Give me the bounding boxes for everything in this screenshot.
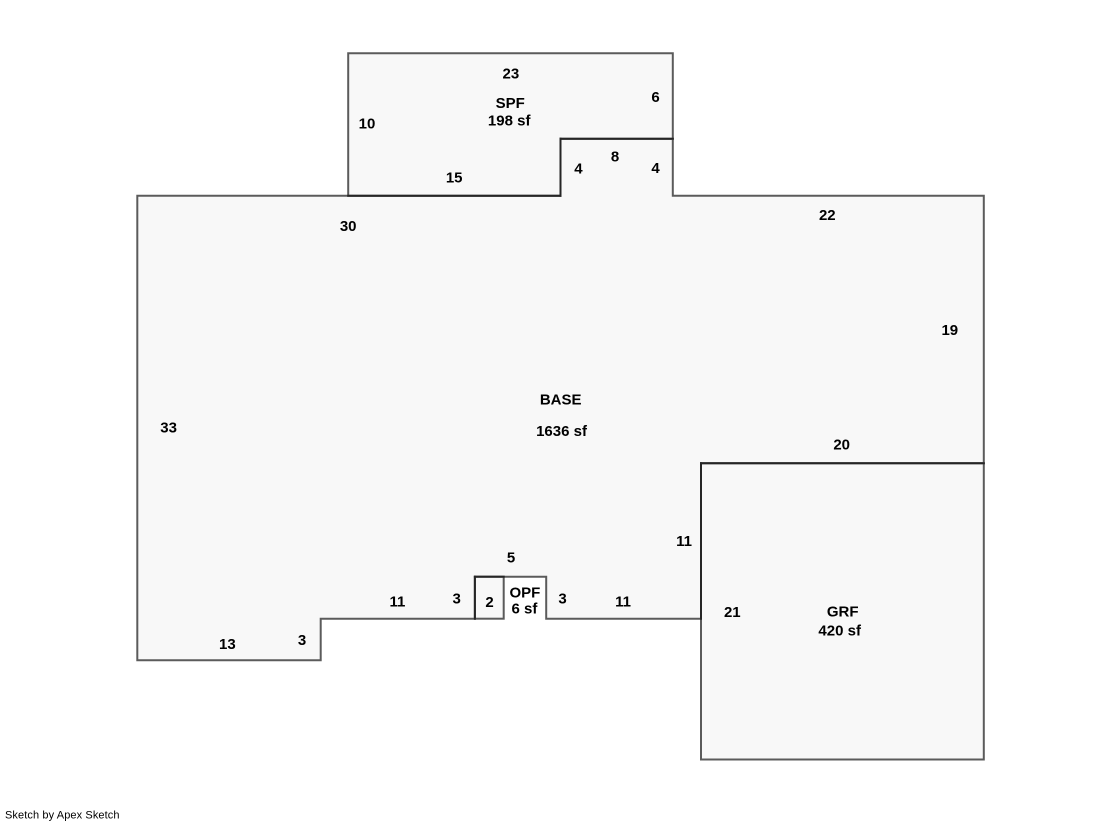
svg-text:11: 11 <box>615 594 631 611</box>
svg-text:20: 20 <box>833 437 850 454</box>
svg-text:OPF: OPF <box>509 585 540 602</box>
svg-text:4: 4 <box>574 161 583 178</box>
svg-text:19: 19 <box>941 322 958 339</box>
svg-text:BASE: BASE <box>540 392 582 409</box>
svg-text:2: 2 <box>485 594 493 611</box>
svg-text:4: 4 <box>651 160 660 177</box>
svg-text:11: 11 <box>389 594 405 611</box>
svg-text:SPF: SPF <box>496 95 525 112</box>
svg-text:22: 22 <box>819 207 836 224</box>
svg-text:23: 23 <box>503 66 520 83</box>
svg-text:5: 5 <box>507 549 515 566</box>
svg-text:15: 15 <box>446 170 463 187</box>
svg-text:6: 6 <box>651 89 659 106</box>
svg-text:6 sf: 6 sf <box>511 601 538 618</box>
svg-text:8: 8 <box>611 148 619 165</box>
svg-text:3: 3 <box>453 590 461 607</box>
svg-text:11: 11 <box>676 533 692 550</box>
svg-text:Sketch by Apex Sketch: Sketch by Apex Sketch <box>5 810 120 821</box>
svg-text:1636 sf: 1636 sf <box>536 423 588 440</box>
svg-text:GRF: GRF <box>827 604 859 621</box>
svg-text:21: 21 <box>724 604 741 621</box>
svg-text:420 sf: 420 sf <box>818 622 862 639</box>
svg-text:3: 3 <box>298 632 306 649</box>
svg-text:10: 10 <box>359 116 376 133</box>
svg-text:33: 33 <box>160 419 177 436</box>
svg-text:198 sf: 198 sf <box>488 112 532 129</box>
svg-text:13: 13 <box>219 636 236 653</box>
svg-text:30: 30 <box>340 218 357 235</box>
svg-text:3: 3 <box>558 590 566 607</box>
